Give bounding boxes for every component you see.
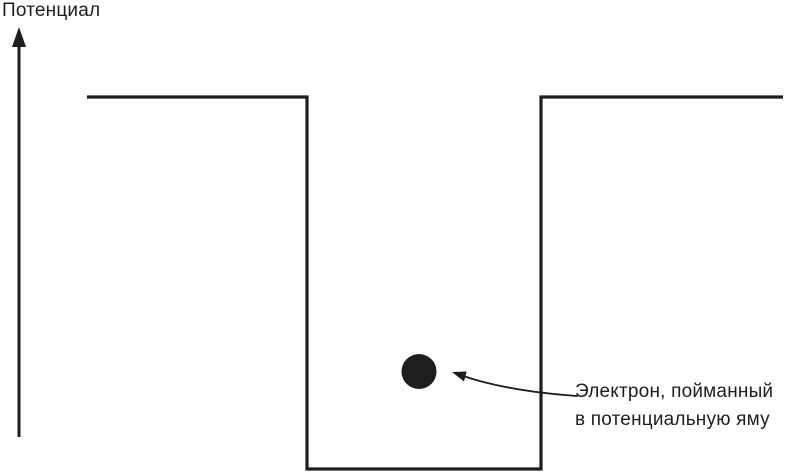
- axis-title: Потенциал: [2, 0, 100, 22]
- annotation-line-2: в потенциальную яму: [575, 406, 773, 434]
- potential-well-diagram: Потенциал Электрон, пойманный в потенциа…: [0, 0, 790, 475]
- annotation-arrow: [452, 372, 577, 397]
- annotation-arrow-curve: [459, 375, 577, 397]
- y-axis: [12, 27, 26, 437]
- annotation-label: Электрон, пойманный в потенциальную яму: [575, 378, 773, 434]
- y-axis-arrowhead-icon: [12, 27, 26, 47]
- annotation-arrowhead-icon: [452, 372, 467, 382]
- annotation-line-1: Электрон, пойманный: [575, 378, 773, 406]
- electron-dot: [402, 354, 437, 389]
